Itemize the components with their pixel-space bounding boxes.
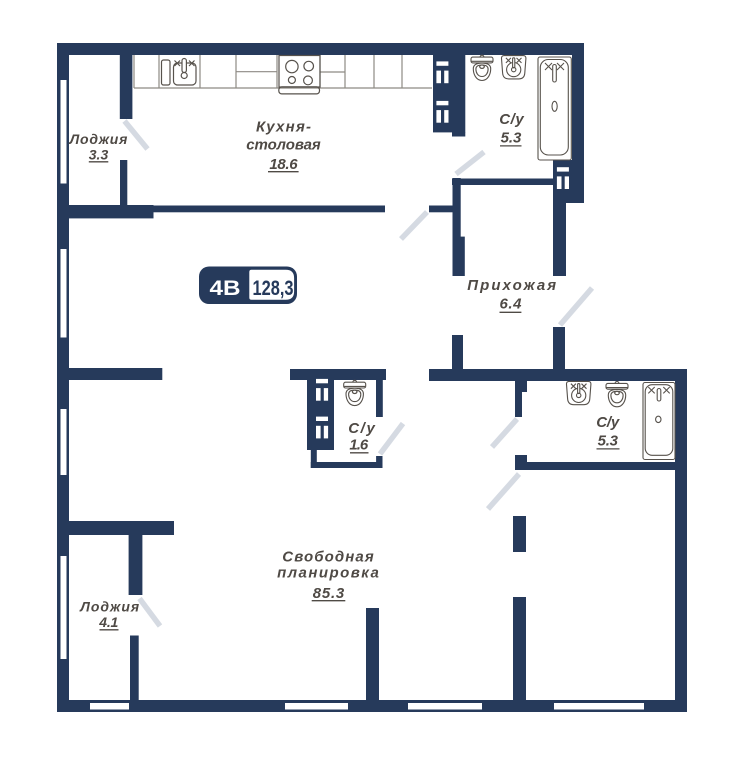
svg-text:5.3: 5.3 [598, 433, 619, 450]
svg-text:5.3: 5.3 [501, 130, 522, 147]
svg-text:6.4: 6.4 [500, 296, 523, 313]
svg-text:Прихожая: Прихожая [467, 277, 556, 294]
svg-text:4.1: 4.1 [98, 614, 118, 630]
svg-text:Кухня-: Кухня- [256, 118, 311, 135]
svg-text:4В: 4В [210, 276, 241, 300]
svg-text:планировка: планировка [277, 565, 379, 582]
svg-text:С/у: С/у [596, 414, 620, 431]
svg-text:Лоджия: Лоджия [69, 131, 128, 147]
svg-text:С/у: С/у [499, 111, 524, 128]
svg-text:Свободная: Свободная [282, 549, 374, 566]
svg-text:85.3: 85.3 [313, 585, 345, 602]
svg-text:128,3: 128,3 [253, 277, 294, 300]
svg-text:1.6: 1.6 [349, 437, 369, 454]
svg-text:столовая: столовая [246, 136, 321, 153]
svg-text:3.3: 3.3 [89, 147, 109, 163]
svg-text:18.6: 18.6 [269, 156, 298, 173]
svg-text:С/у: С/у [348, 420, 375, 437]
svg-text:Лоджия: Лоджия [79, 598, 139, 614]
